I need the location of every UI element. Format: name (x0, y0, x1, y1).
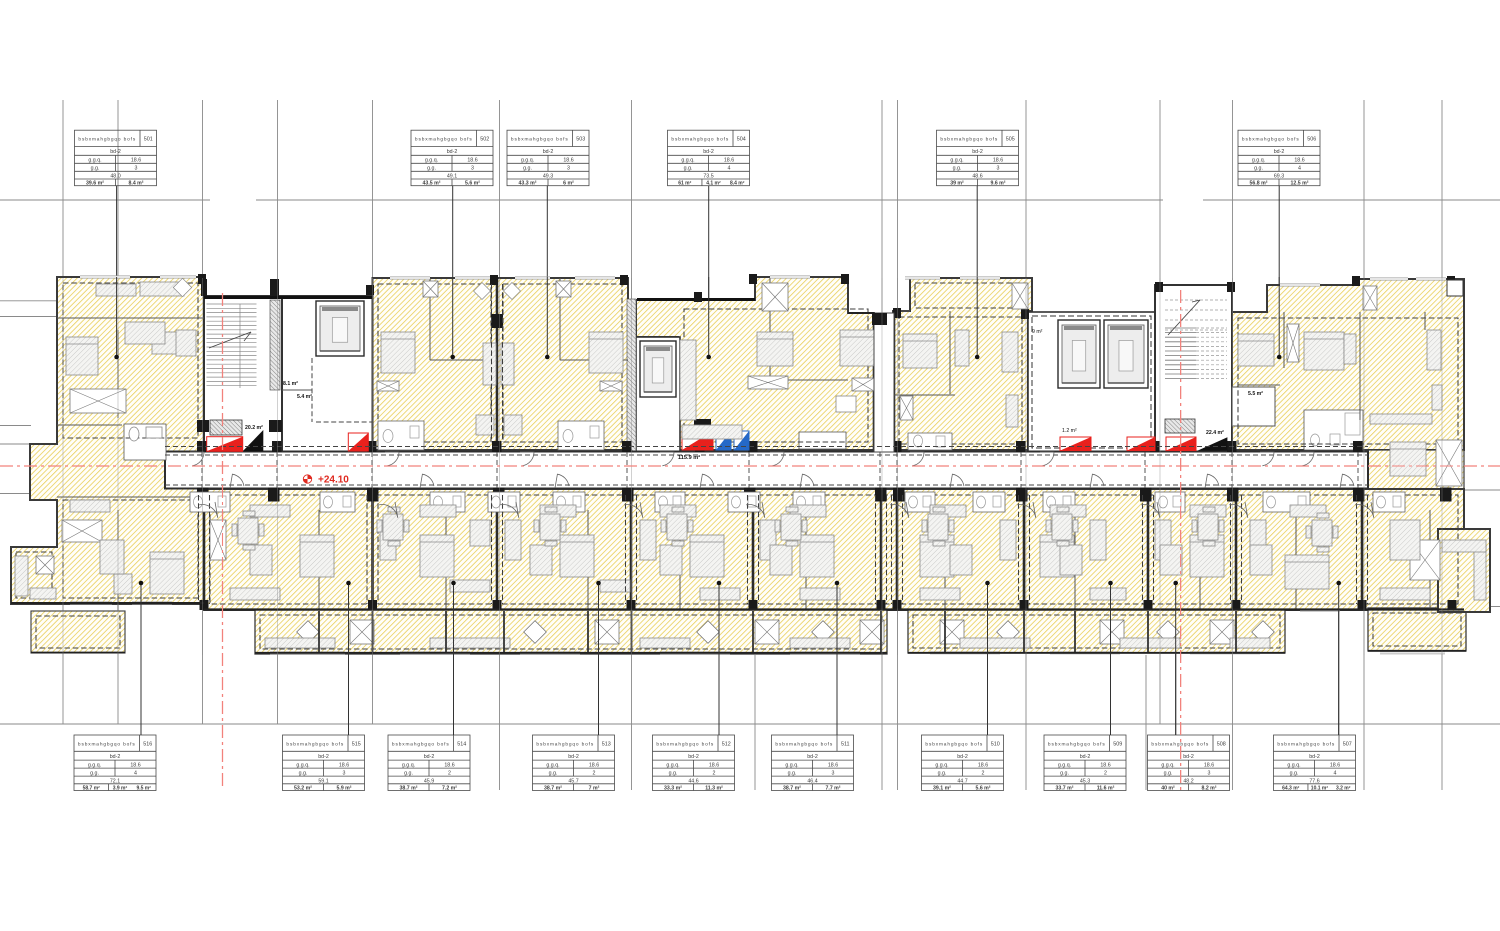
svg-text:53.2 m²: 53.2 m² (294, 785, 312, 791)
svg-text:bsbxmahgbgqo bofs: bsbxmahgbgqo bofs (415, 137, 473, 143)
svg-text:g.g.: g.g. (788, 770, 797, 776)
svg-text:45.9: 45.9 (424, 778, 434, 784)
svg-text:bd-2: bd-2 (1183, 754, 1194, 760)
svg-text:18.6: 18.6 (130, 762, 140, 768)
svg-text:g.g.: g.g. (1290, 770, 1299, 776)
svg-text:513: 513 (602, 742, 611, 748)
svg-text:45.3: 45.3 (1080, 778, 1090, 784)
svg-text:g.g.: g.g. (91, 166, 100, 172)
svg-text:3.9 m²: 3.9 m² (113, 785, 128, 791)
svg-text:5.5 m²: 5.5 m² (1248, 391, 1263, 397)
svg-text:503: 503 (576, 137, 585, 143)
svg-text:bsbxmahgbgqo bofs: bsbxmahgbgqo bofs (1242, 137, 1300, 143)
svg-text:7.2 m²: 7.2 m² (442, 785, 457, 791)
svg-text:49.3: 49.3 (543, 174, 553, 180)
svg-text:48.0: 48.0 (110, 174, 120, 180)
svg-text:18.6: 18.6 (589, 762, 599, 768)
svg-text:bd-2: bd-2 (424, 754, 435, 760)
svg-text:bd-2: bd-2 (957, 754, 968, 760)
svg-text:2: 2 (982, 770, 985, 776)
svg-text:g.g.q.: g.g.q. (1058, 762, 1071, 768)
svg-text:g.g.: g.g. (938, 770, 947, 776)
svg-text:g.g.: g.g. (299, 770, 308, 776)
svg-text:g.g.q.: g.g.q. (950, 158, 963, 164)
svg-text:507: 507 (1343, 742, 1352, 748)
svg-text:18.6: 18.6 (339, 762, 349, 768)
svg-text:3.2 m²: 3.2 m² (1336, 785, 1351, 791)
svg-text:bsbxmahgbgqo bofs: bsbxmahgbgqo bofs (78, 137, 136, 143)
svg-text:bsbxmahgbgqo bofs: bsbxmahgbgqo bofs (536, 742, 594, 748)
svg-text:18.6: 18.6 (563, 158, 573, 164)
svg-text:38.7 m²: 38.7 m² (544, 785, 562, 791)
svg-text:44.6: 44.6 (688, 778, 698, 784)
svg-text:43.3 m²: 43.3 m² (519, 181, 537, 187)
svg-text:3: 3 (997, 166, 1000, 172)
svg-text:9.6 m²: 9.6 m² (991, 181, 1006, 187)
svg-text:bsbxmahgbgqo bofs: bsbxmahgbgqo bofs (940, 137, 998, 143)
svg-text:g.g.: g.g. (1254, 166, 1263, 172)
svg-text:72.1: 72.1 (110, 778, 120, 784)
svg-text:40 m²: 40 m² (1161, 785, 1175, 791)
svg-text:8.4 m²: 8.4 m² (730, 181, 745, 187)
svg-text:5.4 m²: 5.4 m² (297, 394, 312, 400)
svg-text:49.1: 49.1 (447, 174, 457, 180)
svg-text:g.g.q.: g.g.q. (88, 762, 101, 768)
svg-text:58.7 m²: 58.7 m² (83, 785, 101, 791)
svg-text:504: 504 (737, 137, 746, 143)
svg-text:bsbxmahgbgqo bofs: bsbxmahgbgqo bofs (656, 742, 714, 748)
svg-text:511: 511 (841, 742, 850, 748)
svg-text:bd-2: bd-2 (110, 149, 121, 155)
svg-text:33.3 m²: 33.3 m² (664, 785, 682, 791)
svg-text:18.6: 18.6 (993, 158, 1003, 164)
svg-text:bd-2: bd-2 (807, 754, 818, 760)
svg-text:3: 3 (1208, 770, 1211, 776)
svg-text:11.6 m²: 11.6 m² (1097, 785, 1115, 791)
svg-text:3: 3 (567, 166, 570, 172)
svg-text:g.g.: g.g. (1164, 770, 1173, 776)
svg-text:g.g.q.: g.g.q. (546, 762, 559, 768)
svg-text:4: 4 (1298, 166, 1301, 172)
svg-text:506: 506 (1307, 137, 1316, 143)
svg-text:g.g.q.: g.g.q. (425, 158, 438, 164)
svg-text:38.7 m²: 38.7 m² (783, 785, 801, 791)
svg-text:bd-2: bd-2 (447, 149, 458, 155)
svg-text:505: 505 (1006, 137, 1015, 143)
svg-text:512: 512 (722, 742, 731, 748)
svg-text:2: 2 (1104, 770, 1107, 776)
svg-text:46.4: 46.4 (807, 778, 817, 784)
svg-text:7.7 m²: 7.7 m² (826, 785, 841, 791)
svg-text:1.2 m²: 1.2 m² (1062, 428, 1077, 434)
svg-text:bd-2: bd-2 (688, 754, 699, 760)
svg-text:bsbxmahgbgqo bofs: bsbxmahgbgqo bofs (392, 742, 450, 748)
svg-text:g.g.q.: g.g.q. (681, 158, 694, 164)
svg-text:18.6: 18.6 (467, 158, 477, 164)
svg-text:11.3 m²: 11.3 m² (705, 785, 723, 791)
svg-text:2: 2 (593, 770, 596, 776)
svg-text:bd-2: bd-2 (318, 754, 329, 760)
svg-text:g.g.q.: g.g.q. (402, 762, 415, 768)
svg-text:bd-2: bd-2 (568, 754, 579, 760)
svg-text:69.3: 69.3 (1274, 174, 1284, 180)
svg-text:18.6: 18.6 (1330, 762, 1340, 768)
svg-text:18.6: 18.6 (709, 762, 719, 768)
svg-text:8.2 m²: 8.2 m² (1202, 785, 1217, 791)
svg-text:515: 515 (352, 742, 361, 748)
svg-text:4: 4 (728, 166, 731, 172)
svg-text:38.7 m²: 38.7 m² (400, 785, 418, 791)
svg-text:39 m²: 39 m² (950, 181, 964, 187)
svg-text:18.6: 18.6 (444, 762, 454, 768)
svg-text:5.6 m²: 5.6 m² (465, 181, 480, 187)
svg-text:18.6: 18.6 (131, 158, 141, 164)
svg-text:5.9 m²: 5.9 m² (337, 785, 352, 791)
svg-text:73.5: 73.5 (703, 174, 713, 180)
svg-text:bd-2: bd-2 (1274, 149, 1285, 155)
svg-text:g.g.q.: g.g.q. (666, 762, 679, 768)
svg-text:64.3 m²: 64.3 m² (1282, 785, 1300, 791)
svg-text:7 m²: 7 m² (589, 785, 600, 791)
svg-text:18.6: 18.6 (1294, 158, 1304, 164)
svg-text:g.g.: g.g. (1060, 770, 1069, 776)
svg-text:61 m²: 61 m² (678, 181, 691, 187)
svg-text:g.g.: g.g. (549, 770, 558, 776)
svg-text:2: 2 (448, 770, 451, 776)
svg-text:4: 4 (134, 770, 137, 776)
svg-text:g.g.q.: g.g.q. (1252, 158, 1265, 164)
svg-text:9 m²: 9 m² (1032, 329, 1043, 335)
svg-text:115.9 m²: 115.9 m² (678, 454, 700, 461)
svg-text:g.g.q.: g.g.q. (296, 762, 309, 768)
svg-text:509: 509 (1113, 742, 1122, 748)
svg-text:bsbxmahgbgqo bofs: bsbxmahgbgqo bofs (1277, 742, 1335, 748)
svg-text:2: 2 (713, 770, 716, 776)
svg-text:5.6 m²: 5.6 m² (976, 785, 991, 791)
svg-text:bd-2: bd-2 (1080, 754, 1091, 760)
svg-text:g.g.: g.g. (669, 770, 678, 776)
svg-text:502: 502 (480, 137, 489, 143)
svg-text:bsbxmahgbgqo bofs: bsbxmahgbgqo bofs (1048, 742, 1106, 748)
svg-text:48.2: 48.2 (1183, 778, 1193, 784)
svg-text:g.g.q.: g.g.q. (1161, 762, 1174, 768)
svg-text:g.g.q.: g.g.q. (1287, 762, 1300, 768)
svg-text:3: 3 (343, 770, 346, 776)
svg-text:20.2 m²: 20.2 m² (245, 425, 263, 431)
svg-text:10.1 m²: 10.1 m² (1311, 785, 1329, 791)
svg-text:77.6: 77.6 (1309, 778, 1319, 784)
svg-text:12.5 m²: 12.5 m² (1291, 181, 1309, 187)
svg-text:g.g.q.: g.g.q. (935, 762, 948, 768)
svg-text:516: 516 (143, 742, 152, 748)
svg-text:bsbxmahgbgqo bofs: bsbxmahgbgqo bofs (511, 137, 569, 143)
svg-text:g.g.q.: g.g.q. (785, 762, 798, 768)
svg-text:bsbxmahgbgqo bofs: bsbxmahgbgqo bofs (775, 742, 833, 748)
svg-text:g.g.: g.g. (404, 770, 413, 776)
svg-text:g.g.: g.g. (523, 166, 532, 172)
svg-text:510: 510 (991, 742, 1000, 748)
svg-text:+24.10: +24.10 (318, 475, 349, 486)
svg-text:g.g.: g.g. (90, 770, 99, 776)
svg-text:3: 3 (135, 166, 138, 172)
svg-text:48.6: 48.6 (972, 174, 982, 180)
svg-text:3: 3 (832, 770, 835, 776)
svg-text:3: 3 (471, 166, 474, 172)
svg-text:bsbxmahgbgqo bofs: bsbxmahgbgqo bofs (78, 742, 136, 748)
svg-text:g.g.q.: g.g.q. (88, 158, 101, 164)
svg-text:59.1: 59.1 (318, 778, 328, 784)
svg-text:33.7 m²: 33.7 m² (1056, 785, 1074, 791)
svg-text:45.7: 45.7 (568, 778, 578, 784)
svg-text:43.5 m²: 43.5 m² (423, 181, 441, 187)
svg-text:g.g.: g.g. (684, 166, 693, 172)
svg-text:g.g.: g.g. (953, 166, 962, 172)
svg-text:6 m²: 6 m² (563, 181, 574, 187)
svg-text:4: 4 (1334, 770, 1337, 776)
svg-text:18.6: 18.6 (828, 762, 838, 768)
svg-text:56.8 m²: 56.8 m² (1250, 181, 1268, 187)
svg-text:bd-2: bd-2 (543, 149, 554, 155)
svg-text:22.4 m²: 22.4 m² (1206, 430, 1224, 436)
svg-text:8.1 m²: 8.1 m² (283, 381, 298, 387)
svg-text:bd-2: bd-2 (110, 754, 121, 760)
svg-text:bsbxmahgbgqo bofs: bsbxmahgbgqo bofs (925, 742, 983, 748)
svg-text:bsbxmahgbgqo bofs: bsbxmahgbgqo bofs (286, 742, 344, 748)
svg-text:bd-2: bd-2 (1309, 754, 1320, 760)
svg-text:44.7: 44.7 (957, 778, 967, 784)
svg-text:18.6: 18.6 (724, 158, 734, 164)
svg-text:514: 514 (457, 742, 466, 748)
svg-text:508: 508 (1217, 742, 1226, 748)
svg-text:18.6: 18.6 (978, 762, 988, 768)
svg-text:501: 501 (144, 137, 153, 143)
svg-text:bd-2: bd-2 (703, 149, 714, 155)
svg-text:bd-2: bd-2 (972, 149, 983, 155)
svg-text:g.g.: g.g. (427, 166, 436, 172)
svg-text:g.g.q.: g.g.q. (521, 158, 534, 164)
svg-text:9.5 m²: 9.5 m² (136, 785, 151, 791)
svg-text:8.4 m²: 8.4 m² (129, 181, 144, 187)
svg-text:18.6: 18.6 (1204, 762, 1214, 768)
svg-text:39.1 m²: 39.1 m² (933, 785, 951, 791)
svg-text:39.6 m²: 39.6 m² (86, 181, 104, 187)
svg-text:bsbxmahgbgqo bofs: bsbxmahgbgqo bofs (671, 137, 729, 143)
svg-text:18.6: 18.6 (1100, 762, 1110, 768)
